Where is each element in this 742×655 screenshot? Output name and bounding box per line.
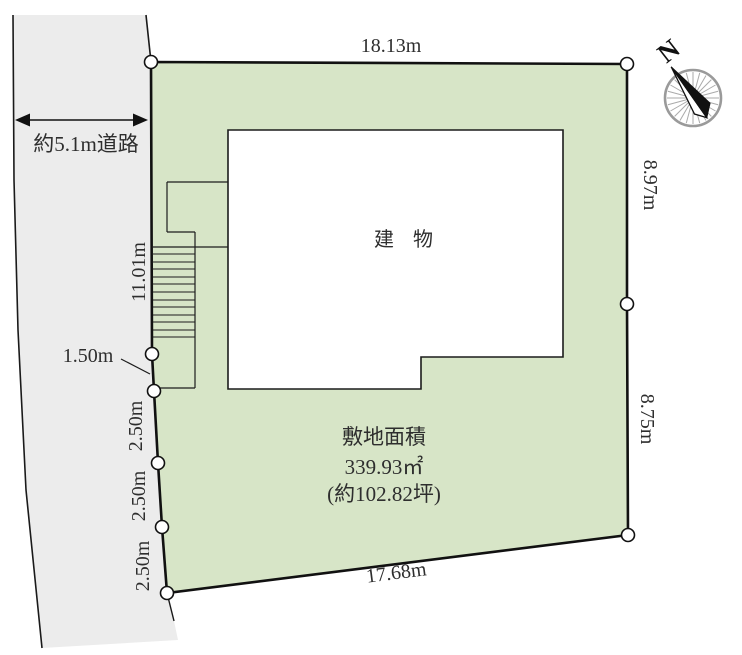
survey-point (145, 56, 158, 69)
survey-point (621, 58, 634, 71)
site-plan: 約5.1m道路 18.13m 8.97m 8.75m 17.68m 11.01m… (0, 0, 742, 655)
dimension-right-lower-label: 8.75m (636, 394, 658, 445)
survey-point (146, 348, 159, 361)
road-width-label: 約5.1m道路 (33, 132, 139, 156)
survey-point (161, 587, 174, 600)
survey-point (148, 385, 161, 398)
survey-point (621, 298, 634, 311)
dimension-left-seg3-label: 2.50m (132, 540, 154, 591)
site-area-sqm: 339.93㎡ (345, 455, 424, 479)
building-outline (228, 130, 563, 389)
dimension-left-seg2-label: 2.50m (128, 470, 150, 521)
dimension-left-step-label: 1.50m (63, 345, 114, 367)
building-label: 建 物 (374, 228, 440, 251)
dimension-left-upper-label: 11.01m (128, 242, 150, 302)
dimension-left-seg1-label: 2.50m (125, 400, 147, 451)
dimension-right-upper-label: 8.97m (639, 160, 661, 211)
site-plan-drawing: 約5.1m道路 18.13m 8.97m 8.75m 17.68m 11.01m… (0, 0, 742, 655)
survey-point (622, 529, 635, 542)
site-area-tsubo: (約102.82坪) (327, 482, 441, 506)
survey-point (152, 457, 165, 470)
compass: N (652, 33, 721, 126)
survey-point (156, 521, 169, 534)
north-label: N (652, 33, 686, 69)
dimension-top-label: 18.13m (361, 35, 422, 57)
site-area-heading: 敷地面積 (342, 425, 426, 449)
